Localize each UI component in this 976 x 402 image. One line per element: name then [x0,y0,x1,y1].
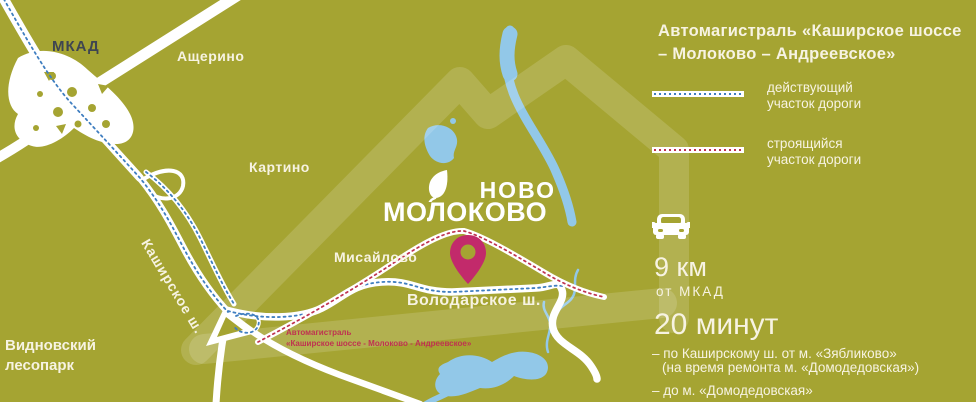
label-misaylovo: Мисайлово [334,249,417,265]
logo-line2: МОЛОКОВО [383,197,547,228]
legend-swatch-existing-road [652,91,744,97]
distance-value: 9 км [654,252,707,283]
location-pin-icon [449,234,487,286]
legend-label-existing-road: действующий участок дороги [767,80,861,112]
label-highway-note: Автомагистраль «Каширское шоссе - Молоко… [286,327,471,349]
novo-molokovo-logo: НОВО МОЛОКОВО [383,166,563,232]
time-note-3: – до м. «Домодедовская» [652,383,813,398]
car-icon [652,213,690,241]
time-value: 20 минут [654,308,778,342]
legend-label-construction-road: строящийся участок дороги [767,136,861,168]
legend-swatch-construction-road [652,147,744,153]
legend-construction-line2: участок дороги [767,152,861,168]
distance-subtitle: от МКАД [656,284,725,299]
legend-existing-line2: участок дороги [767,96,861,112]
route-map-infographic: МКАД Ащерино Картино Мисайлово Володарск… [0,0,976,402]
legend-construction-line1: строящийся [767,136,861,152]
time-note-1: – по Каширскому ш. от м. «Зябликово» [652,346,897,361]
label-highway-note-line1: Автомагистраль [286,327,471,338]
panel-title-line2: – Молоково – Андреевское» [658,43,962,66]
label-vidnovsky-lesopark: Видновский лесопарк [5,336,96,376]
label-kartino: Картино [249,159,310,175]
panel-title-line1: Автомагистраль «Каширское шоссе [658,20,962,43]
label-volodarskoe-highway: Володарское ш. [407,292,541,310]
time-note-2: (на время ремонта м. «Домодедовская») [662,360,919,375]
label-mkad: МКАД [52,38,100,55]
label-vidnovsky-lesopark-line2: лесопарк [5,356,96,376]
label-vidnovsky-lesopark-line1: Видновский [5,336,96,356]
label-highway-note-line2: «Каширское шоссе - Молоково - Андреевско… [286,338,471,349]
label-ascherino: Ащерино [177,48,244,64]
panel-title: Автомагистраль «Каширское шоссе – Молоко… [658,20,962,66]
legend-existing-line1: действующий [767,80,861,96]
